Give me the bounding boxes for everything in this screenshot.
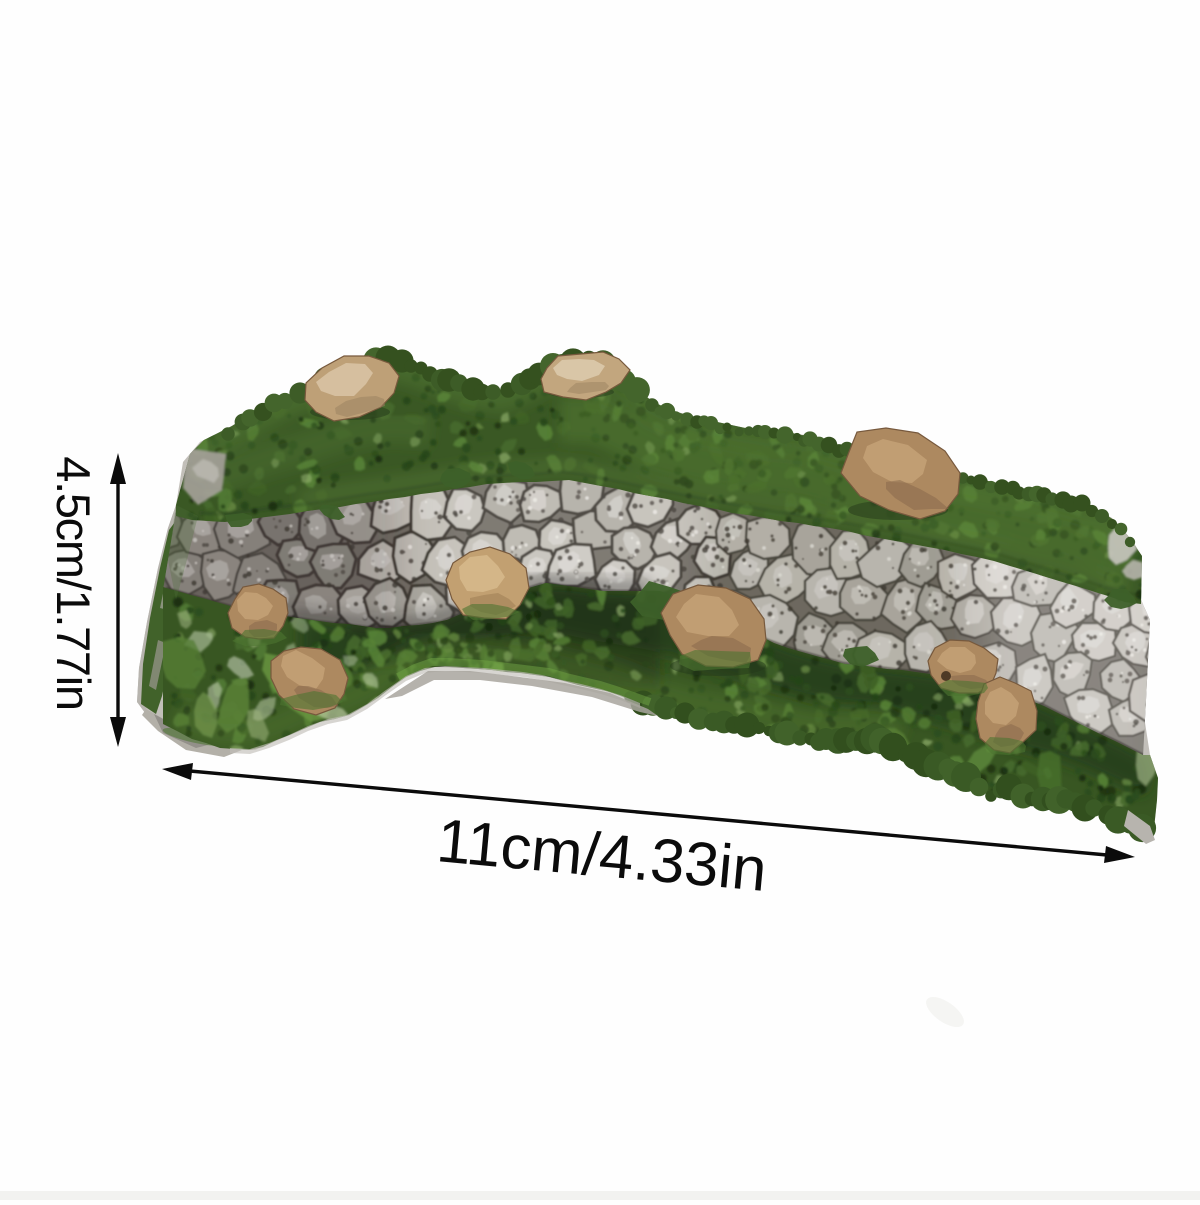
svg-text:4.5cm/1.77in: 4.5cm/1.77in [47,456,100,710]
